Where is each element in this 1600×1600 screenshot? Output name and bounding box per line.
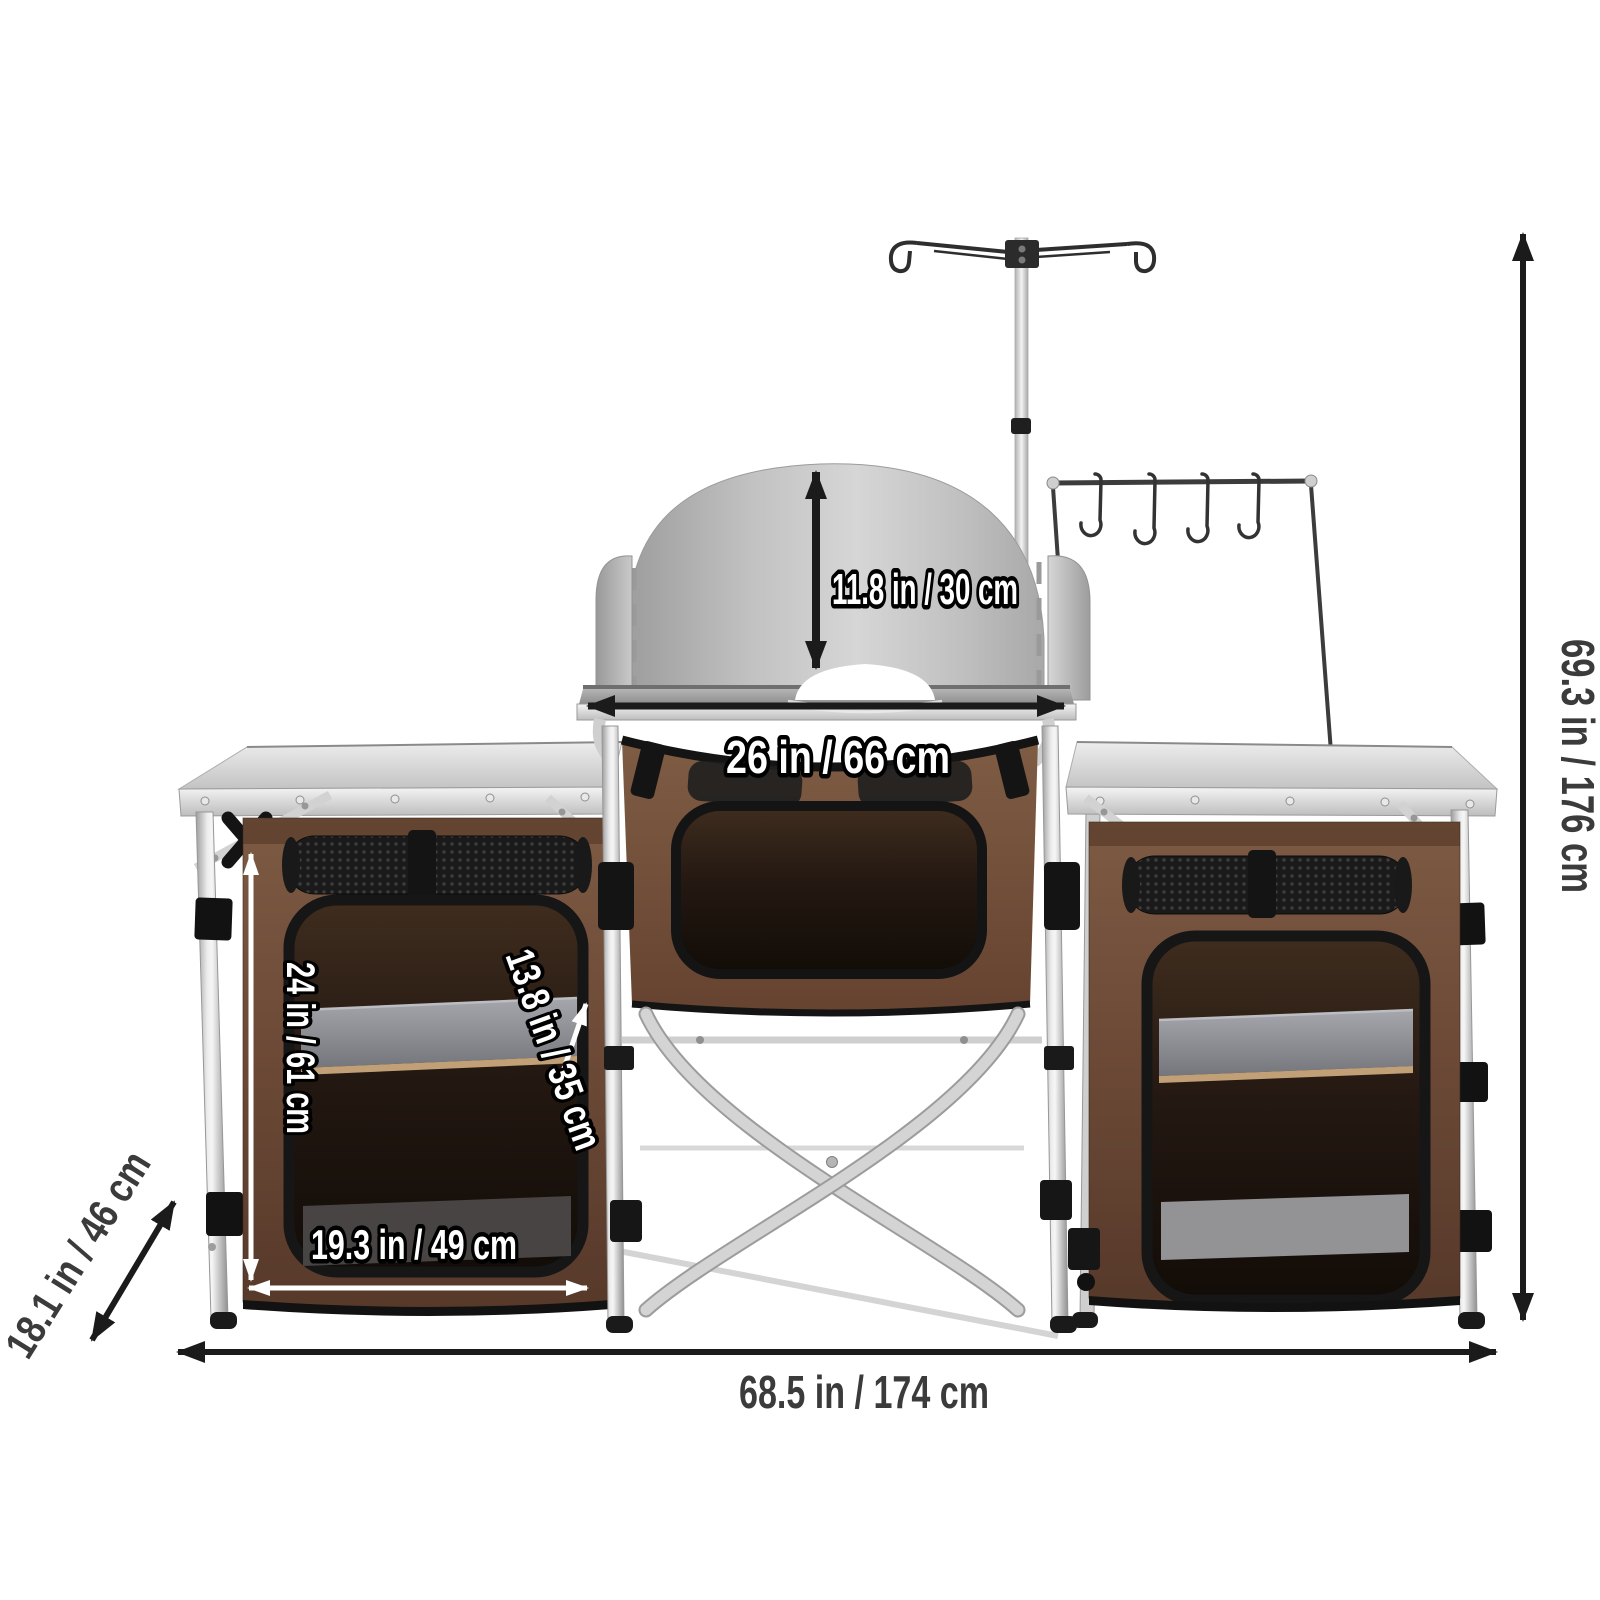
leg-strap: [610, 1200, 642, 1242]
leg-strap: [1068, 1228, 1100, 1270]
door-strap: [1248, 850, 1276, 918]
leg-foot: [1458, 1312, 1485, 1329]
leg-clamp: [604, 1046, 634, 1070]
leg-foot: [1050, 1316, 1077, 1333]
right-cabinet-shelf: [1159, 1010, 1413, 1076]
cupboard-width-label: 19.3 in / 49 cm: [311, 1221, 517, 1268]
leg-strap: [1044, 862, 1080, 930]
product-dimension-diagram: 11.8 in / 30 cm 26 in / 66 cm 69.3 in / …: [0, 0, 1600, 1600]
hook-rack-bar: [1053, 481, 1311, 483]
right-storage-cabinet: [1068, 822, 1460, 1312]
leg-strap: [1040, 1180, 1072, 1220]
leg-strap: [1456, 1210, 1492, 1252]
hook-rack-right-post: [1311, 485, 1331, 752]
leg-foot: [210, 1312, 237, 1329]
leg-strap: [206, 1192, 243, 1236]
overall-width-label: 68.5 in / 174 cm: [739, 1366, 989, 1418]
lantern-hook-icon: [1127, 243, 1154, 271]
center-bag-opening: [676, 806, 982, 974]
overall-height-label: 69.3 in / 176 cm: [1552, 639, 1600, 893]
x-frame-bolt: [827, 1157, 838, 1168]
windscreen-left-wing: [596, 556, 632, 700]
lantern-hook-icon: [891, 243, 917, 272]
hook-rack-joint: [1047, 477, 1059, 489]
left-table-leg: [196, 812, 228, 1318]
leg-strap: [194, 897, 232, 940]
right-table-top: [1066, 742, 1497, 789]
rolled-door-mesh: [286, 836, 588, 894]
overall-depth-label: 18.1 in / 46 cm: [0, 1143, 160, 1366]
windscreen-right-wing: [1048, 556, 1090, 700]
left-table-top: [179, 742, 622, 789]
leg-strap: [598, 862, 634, 930]
right-cabinet-floor: [1161, 1194, 1409, 1260]
leg-clamp: [1044, 1046, 1074, 1070]
hook-rack-joint: [1305, 475, 1317, 487]
camping-kitchen-drawing: 11.8 in / 30 cm 26 in / 66 cm 69.3 in / …: [0, 0, 1600, 1600]
door-strap: [408, 830, 436, 898]
pole-adjust-collar: [1011, 418, 1031, 434]
center-unit: [598, 719, 1080, 1336]
cupboard-height-label: 24 in / 61 cm: [278, 962, 322, 1134]
adjustment-knob-icon: [1077, 1273, 1095, 1291]
right-table-rail: [1066, 787, 1497, 816]
leg-foot: [606, 1316, 633, 1333]
center-right-leg: [1042, 726, 1068, 1324]
windscreen-height-label: 11.8 in / 30 cm: [832, 565, 1018, 614]
burner-table-width-label: 26 in / 66 cm: [726, 731, 950, 783]
pole-top-bracket: [1005, 240, 1039, 268]
